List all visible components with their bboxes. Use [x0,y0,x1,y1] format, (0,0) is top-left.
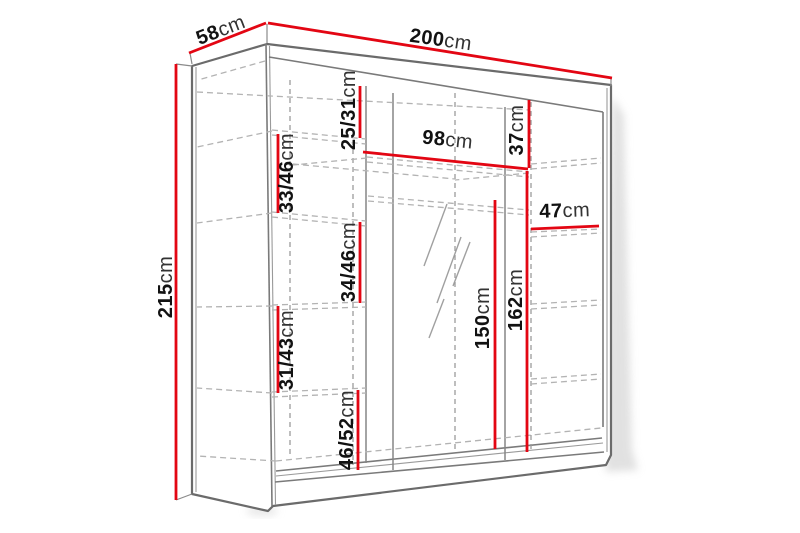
dim-right-interior-label: 162cm [505,269,527,332]
dim-left-shelf-1-label: 25/31cm [338,70,360,150]
dim-hanging-space-label: 150cm [472,287,494,350]
wardrobe-body [192,44,611,511]
diagram-canvas: 58cm 200cm 215cm 25/31cm 33/46cm 34/46cm… [0,0,800,533]
dim-height-label: 215cm [155,256,177,319]
wardrobe-dimension-diagram: 58cm 200cm 215cm 25/31cm 33/46cm 34/46cm… [0,0,800,533]
dim-depth-label: 58cm [193,11,248,50]
dim-right-top-label: 37cm [506,105,528,156]
dim-left-shelf-4-label: 31/43cm [276,310,298,390]
dim-left-shelf-2-label: 33/46cm [276,133,298,213]
dim-width-label: 200cm [408,25,473,55]
wardrobe-outline [192,44,611,511]
dim-left-shelf-5-label: 46/52cm [336,390,358,470]
dim-left-shelf-3-label: 34/46cm [338,222,360,302]
dim-right-width-label: 47cm [539,199,591,223]
